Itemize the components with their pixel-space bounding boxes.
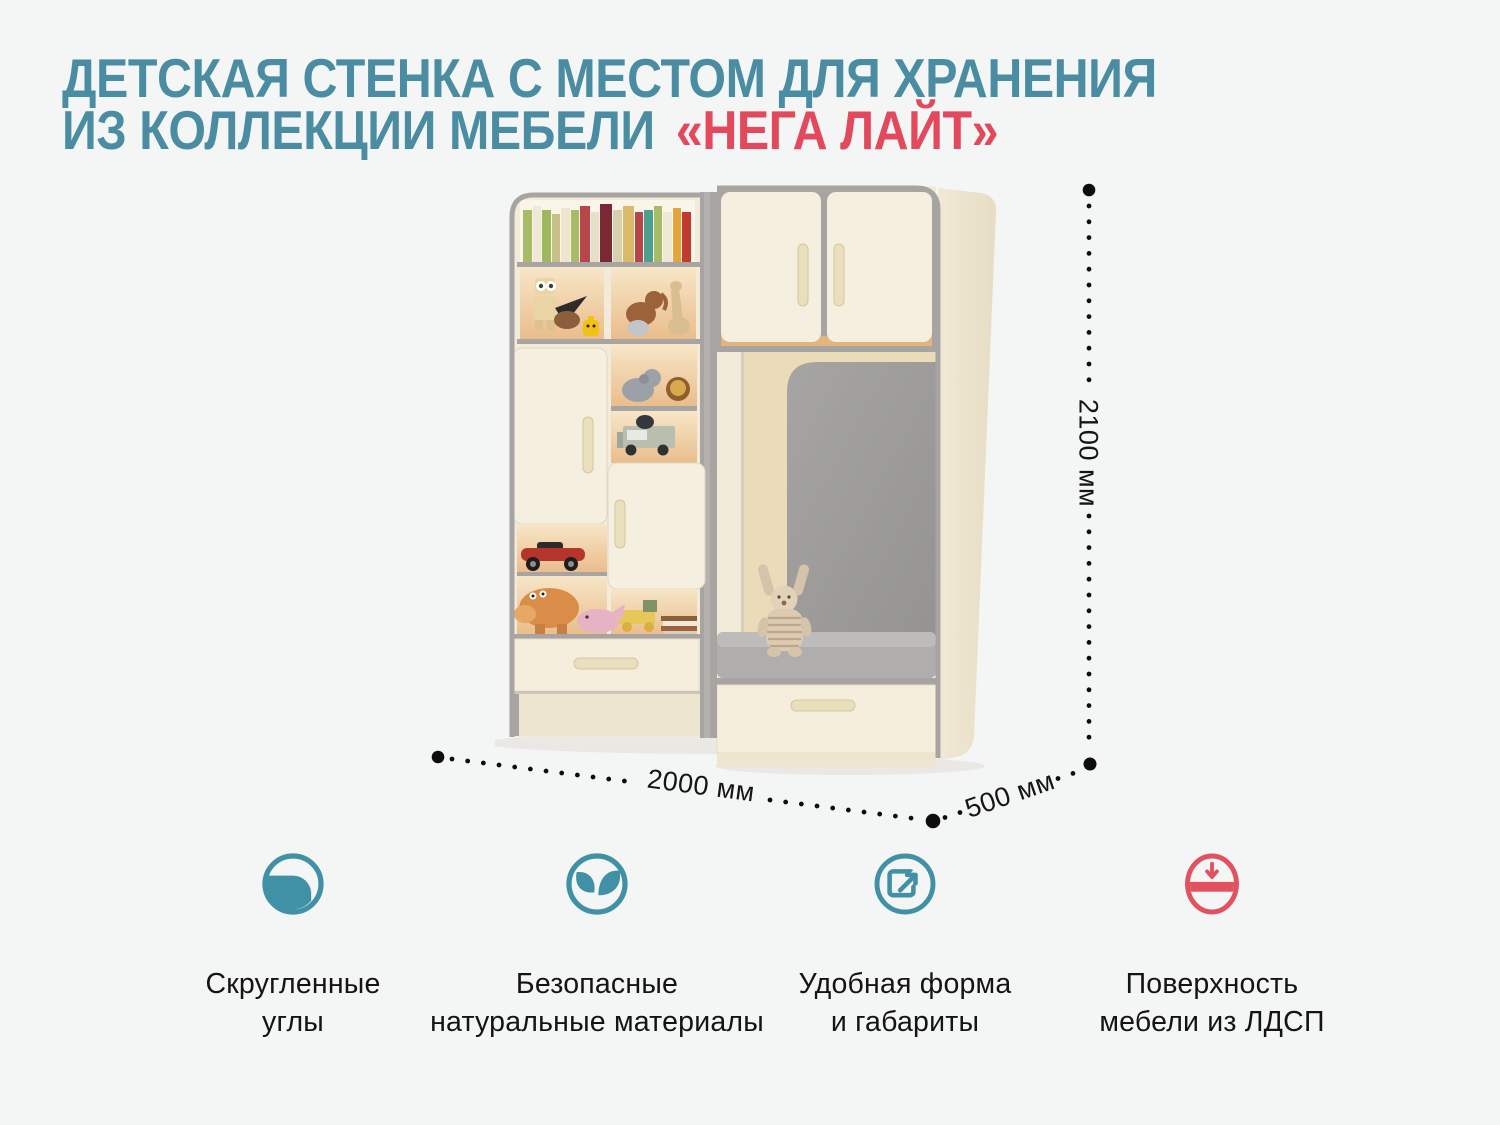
right-drawer xyxy=(717,685,936,753)
feature-label-line1: Безопасные xyxy=(422,965,772,1003)
drawer-handle xyxy=(574,658,638,669)
rounded-corner-icon xyxy=(258,849,328,919)
page-title: ДЕТСКАЯ СТЕНКА С МЕСТОМ ДЛЯ ХРАНЕНИЯ ИЗ … xyxy=(62,52,1157,156)
expand-arrow-icon xyxy=(870,849,940,919)
furniture-illustration xyxy=(495,180,1010,780)
books-row xyxy=(523,204,691,262)
title-line-2: ИЗ КОЛЛЕКЦИИ МЕБЕЛИ«НЕГА ЛАЙТ» xyxy=(62,104,1157,156)
title-line2-prefix: ИЗ КОЛЛЕКЦИИ МЕБЕЛИ xyxy=(62,99,655,161)
left-unit xyxy=(512,195,705,737)
feature-rounded-corners: Скругленные углы xyxy=(118,849,468,1041)
feature-label-line2: натуральные материалы xyxy=(422,1003,772,1041)
unit-divider xyxy=(700,192,717,738)
infographic-page: ДЕТСКАЯ СТЕНКА С МЕСТОМ ДЛЯ ХРАНЕНИЯ ИЗ … xyxy=(0,0,1500,1125)
title-line-1: ДЕТСКАЯ СТЕНКА С МЕСТОМ ДЛЯ ХРАНЕНИЯ xyxy=(62,52,1157,104)
feature-ldsp-surface: Поверхность мебели из ЛДСП xyxy=(1037,849,1387,1041)
drawer-handle xyxy=(791,700,855,711)
door-handle xyxy=(798,244,808,306)
leaves-icon xyxy=(562,849,632,919)
depth-line-left xyxy=(945,812,963,818)
back-cushion xyxy=(787,362,936,638)
feature-label-line1: Поверхность xyxy=(1037,965,1387,1003)
side-panel xyxy=(938,188,996,760)
width-line-right xyxy=(770,800,918,819)
feature-label-line1: Удобная форма xyxy=(730,965,1080,1003)
feature-label-line2: мебели из ЛДСП xyxy=(1037,1003,1387,1041)
title-line2-accent: «НЕГА ЛАЙТ» xyxy=(676,99,998,161)
ldsp-surface-icon xyxy=(1177,849,1247,919)
feature-label-line2: и габариты xyxy=(730,1003,1080,1041)
door-handle xyxy=(583,417,593,473)
door-handle xyxy=(615,500,625,548)
reading-niche xyxy=(717,346,936,678)
height-dimension-label: 2100 мм xyxy=(1073,399,1104,507)
right-unit xyxy=(717,186,936,767)
feature-convenient-shape: Удобная форма и габариты xyxy=(730,849,1080,1041)
feature-label-line1: Скругленные xyxy=(118,965,468,1003)
door-handle xyxy=(834,244,844,306)
feature-natural-materials: Безопасные натуральные материалы xyxy=(422,849,772,1041)
depth-line-right xyxy=(1058,771,1080,779)
feature-label-line2: углы xyxy=(118,1003,468,1041)
